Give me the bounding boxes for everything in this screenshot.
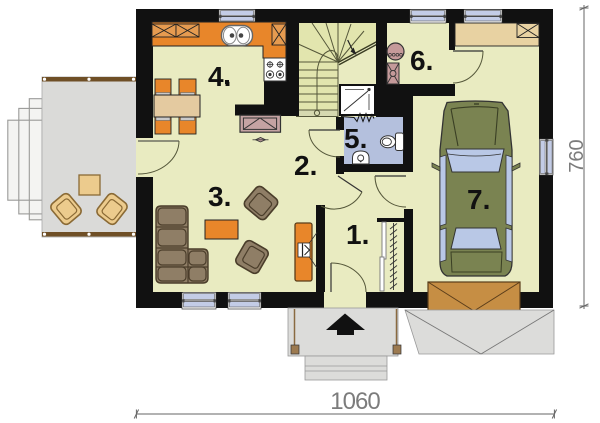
svg-text:2.: 2. (294, 150, 317, 181)
svg-text:3.: 3. (208, 181, 231, 212)
svg-text:1.: 1. (346, 219, 369, 250)
svg-text:1060: 1060 (330, 388, 380, 415)
svg-text:4.: 4. (208, 61, 231, 92)
svg-text:6.: 6. (410, 45, 433, 76)
svg-text:760: 760 (566, 139, 588, 172)
svg-text:5.: 5. (344, 123, 367, 154)
svg-text:7.: 7. (467, 184, 490, 215)
